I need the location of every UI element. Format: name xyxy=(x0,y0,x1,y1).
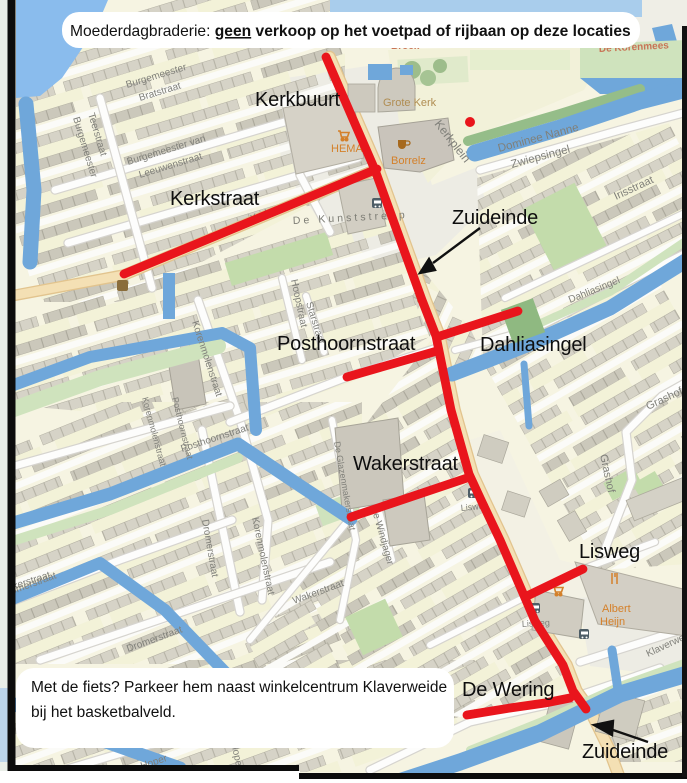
svg-text:Zuideinde: Zuideinde xyxy=(452,207,538,229)
svg-text:Grote Kerk: Grote Kerk xyxy=(383,97,437,109)
svg-text:De Wering: De Wering xyxy=(462,679,554,701)
svg-text:bij het basketbalveld.: bij het basketbalveld. xyxy=(31,704,176,721)
svg-text:Met de fiets? Parkeer hem naas: Met de fiets? Parkeer hem naast winkelce… xyxy=(31,679,447,696)
svg-text:Dahliasingel: Dahliasingel xyxy=(480,334,587,356)
svg-text:HEMA: HEMA xyxy=(331,143,363,155)
svg-text:Wakerstraat: Wakerstraat xyxy=(353,453,459,475)
svg-text:Moederdagbraderie: geen verkoo: Moederdagbraderie: geen verkoop op het v… xyxy=(70,23,631,40)
svg-text:Heijn: Heijn xyxy=(600,616,625,628)
svg-text:Albert: Albert xyxy=(602,603,631,615)
svg-text:Kerkstraat: Kerkstraat xyxy=(170,188,260,210)
svg-text:Zuideinde: Zuideinde xyxy=(582,741,668,763)
svg-text:Lisweg: Lisweg xyxy=(579,541,640,563)
svg-text:Posthoornstraat: Posthoornstraat xyxy=(277,333,416,355)
svg-text:Kerkbuurt: Kerkbuurt xyxy=(255,89,341,111)
svg-text:Borrelz: Borrelz xyxy=(391,155,426,167)
